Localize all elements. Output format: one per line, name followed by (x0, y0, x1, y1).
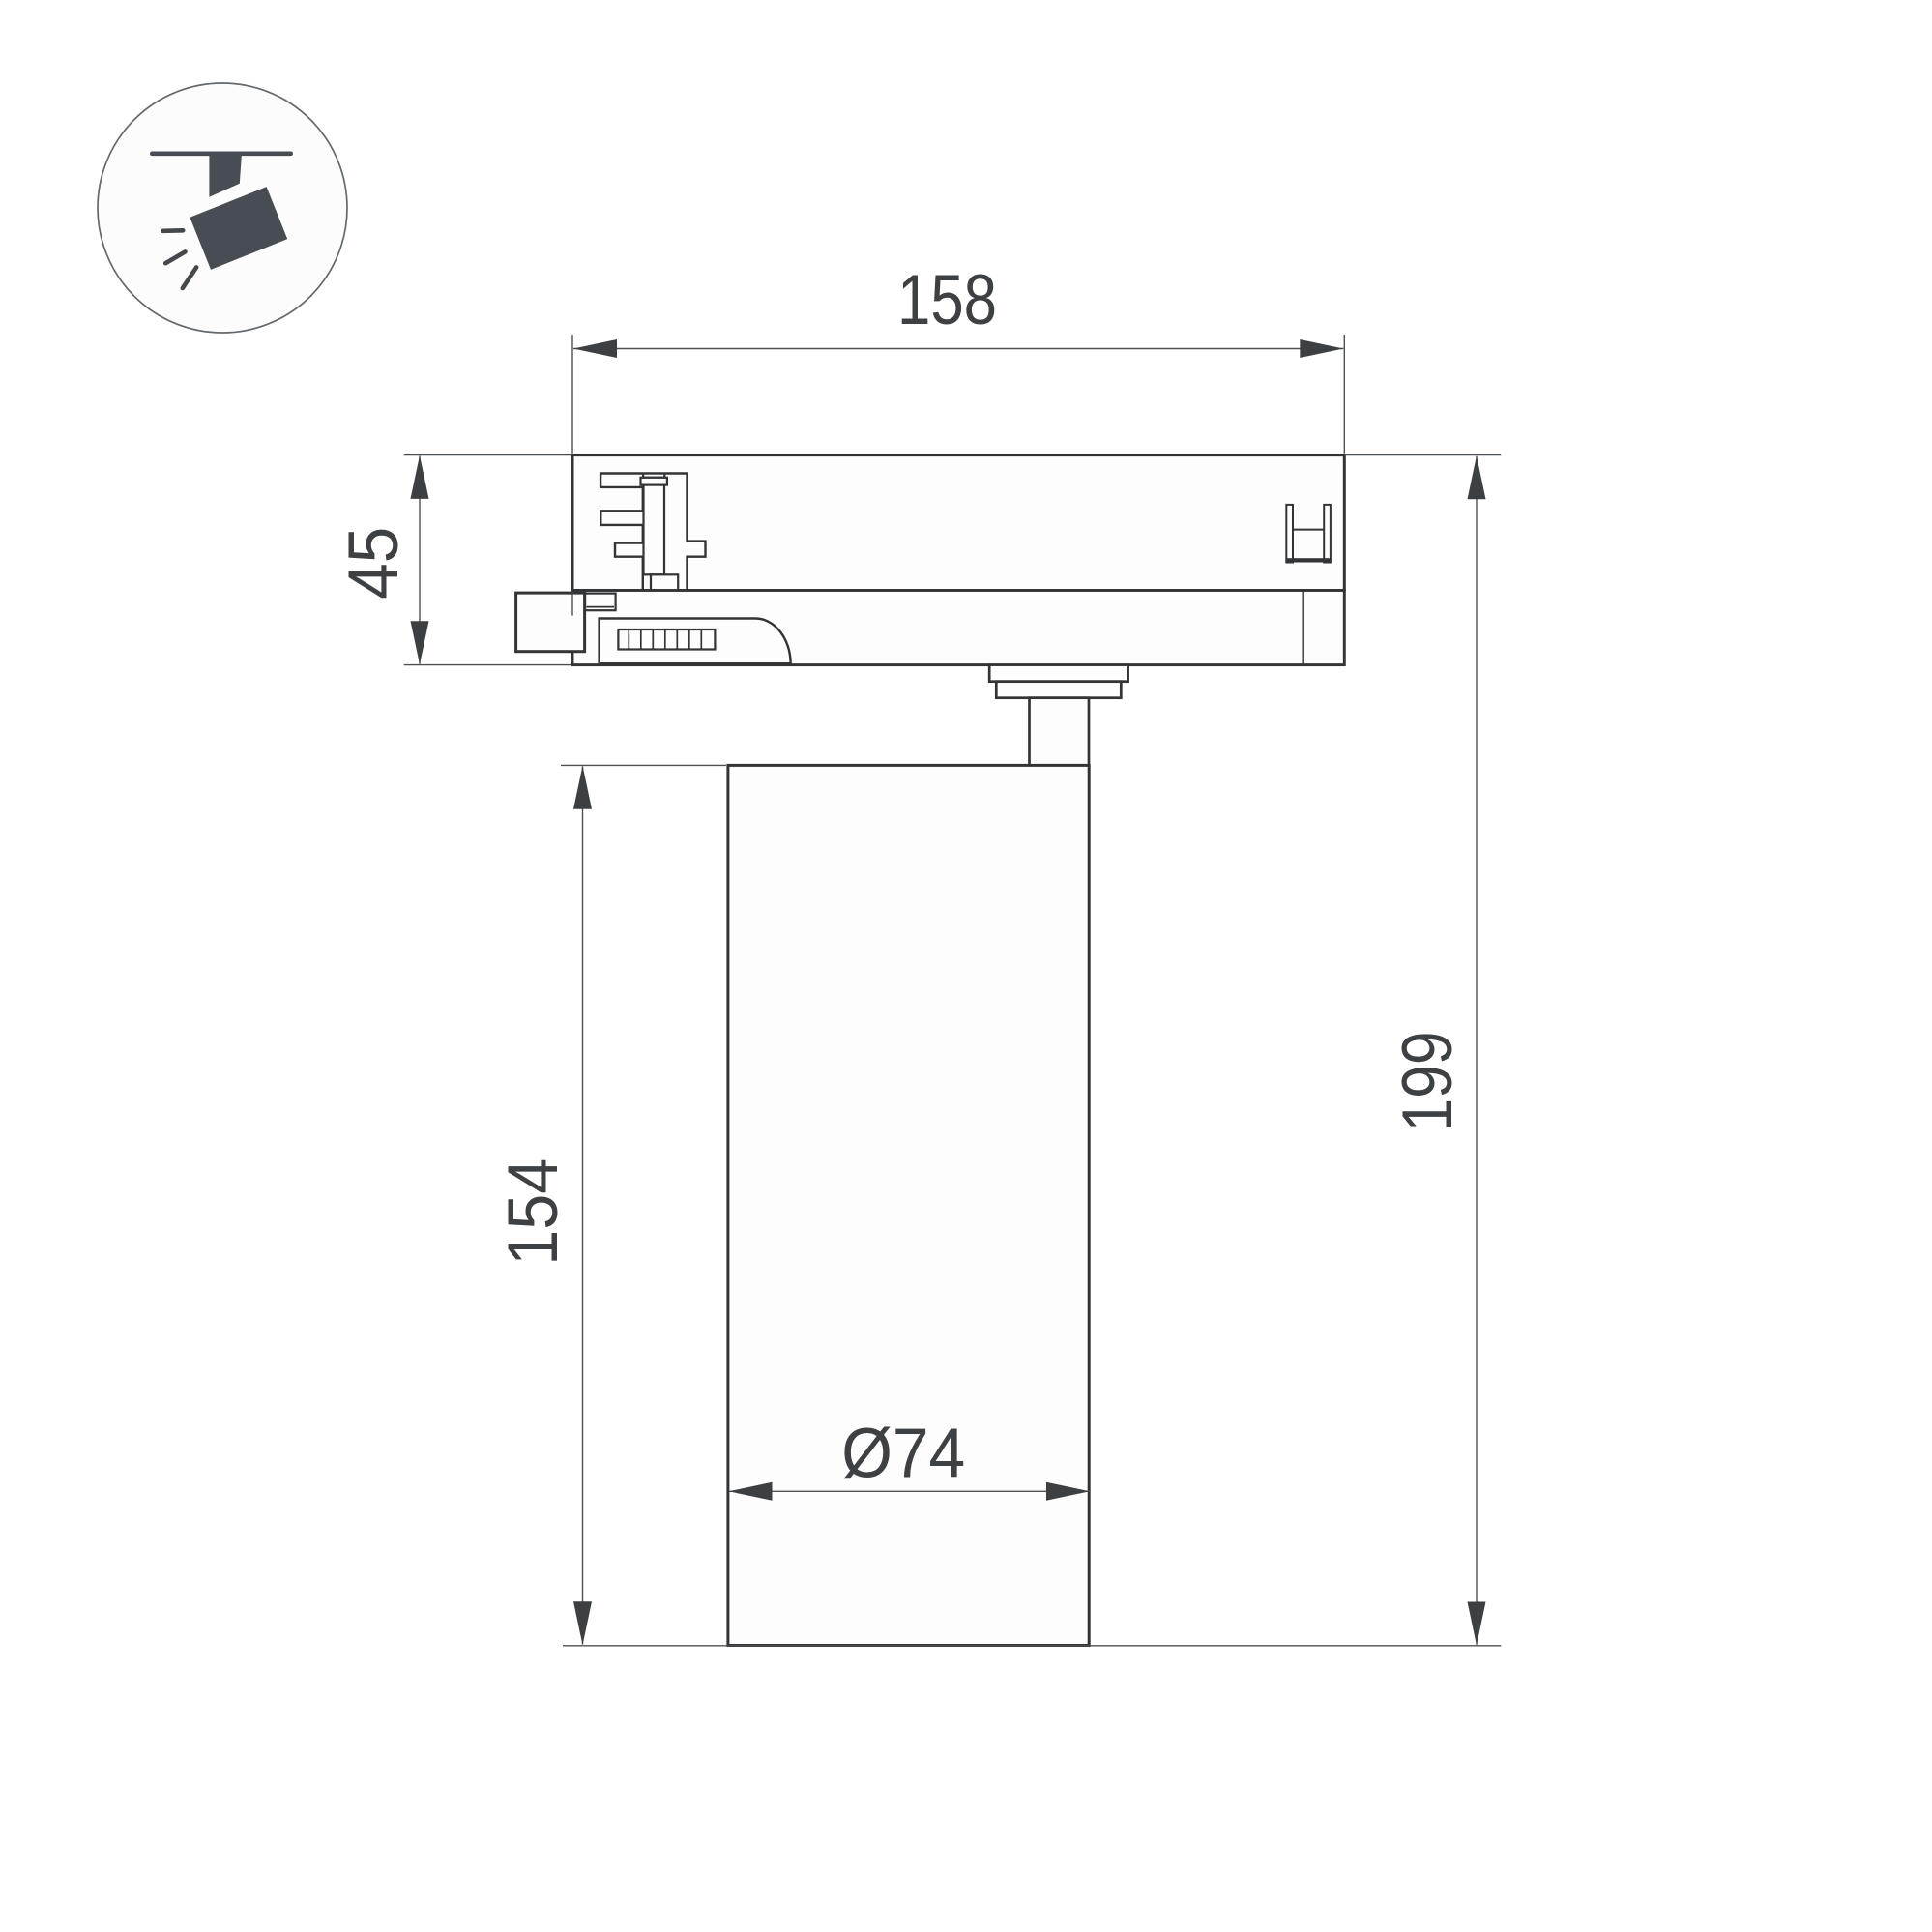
svg-text:Ø74: Ø74 (841, 1416, 965, 1493)
svg-text:199: 199 (1389, 1032, 1467, 1132)
svg-text:154: 154 (494, 1158, 572, 1266)
svg-text:158: 158 (897, 261, 997, 339)
svg-text:45: 45 (335, 527, 413, 600)
